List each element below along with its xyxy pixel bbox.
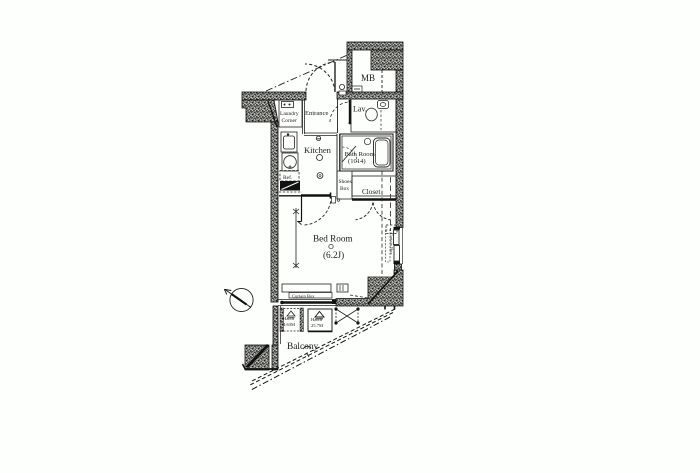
- svg-text:(6.2J): (6.2J): [323, 250, 344, 260]
- svg-text:Corner: Corner: [282, 118, 297, 124]
- svg-text:Box: Box: [340, 186, 349, 192]
- svg-text:Shoes: Shoes: [339, 179, 352, 185]
- svg-text:Bath Room: Bath Room: [345, 151, 376, 158]
- svg-text:Lav.: Lav.: [353, 105, 367, 114]
- svg-text:Ref.: Ref.: [283, 174, 293, 181]
- svg-text:Hatch: Hatch: [283, 316, 295, 321]
- svg-text:Curtain Box: Curtain Box: [292, 294, 315, 299]
- svg-text:Closet: Closet: [362, 188, 380, 196]
- svg-text:Hatch: Hatch: [311, 317, 323, 322]
- svg-text:MB: MB: [361, 73, 375, 83]
- svg-text:25.7M: 25.7M: [311, 323, 323, 328]
- svg-text:Balcony: Balcony: [287, 342, 319, 352]
- svg-text:Laundry: Laundry: [280, 111, 299, 117]
- svg-text:Kitchen: Kitchen: [304, 145, 332, 155]
- svg-text:Bed Room: Bed Room: [313, 234, 353, 244]
- svg-text:4.63M: 4.63M: [283, 322, 295, 327]
- svg-text:Entrance: Entrance: [305, 110, 329, 117]
